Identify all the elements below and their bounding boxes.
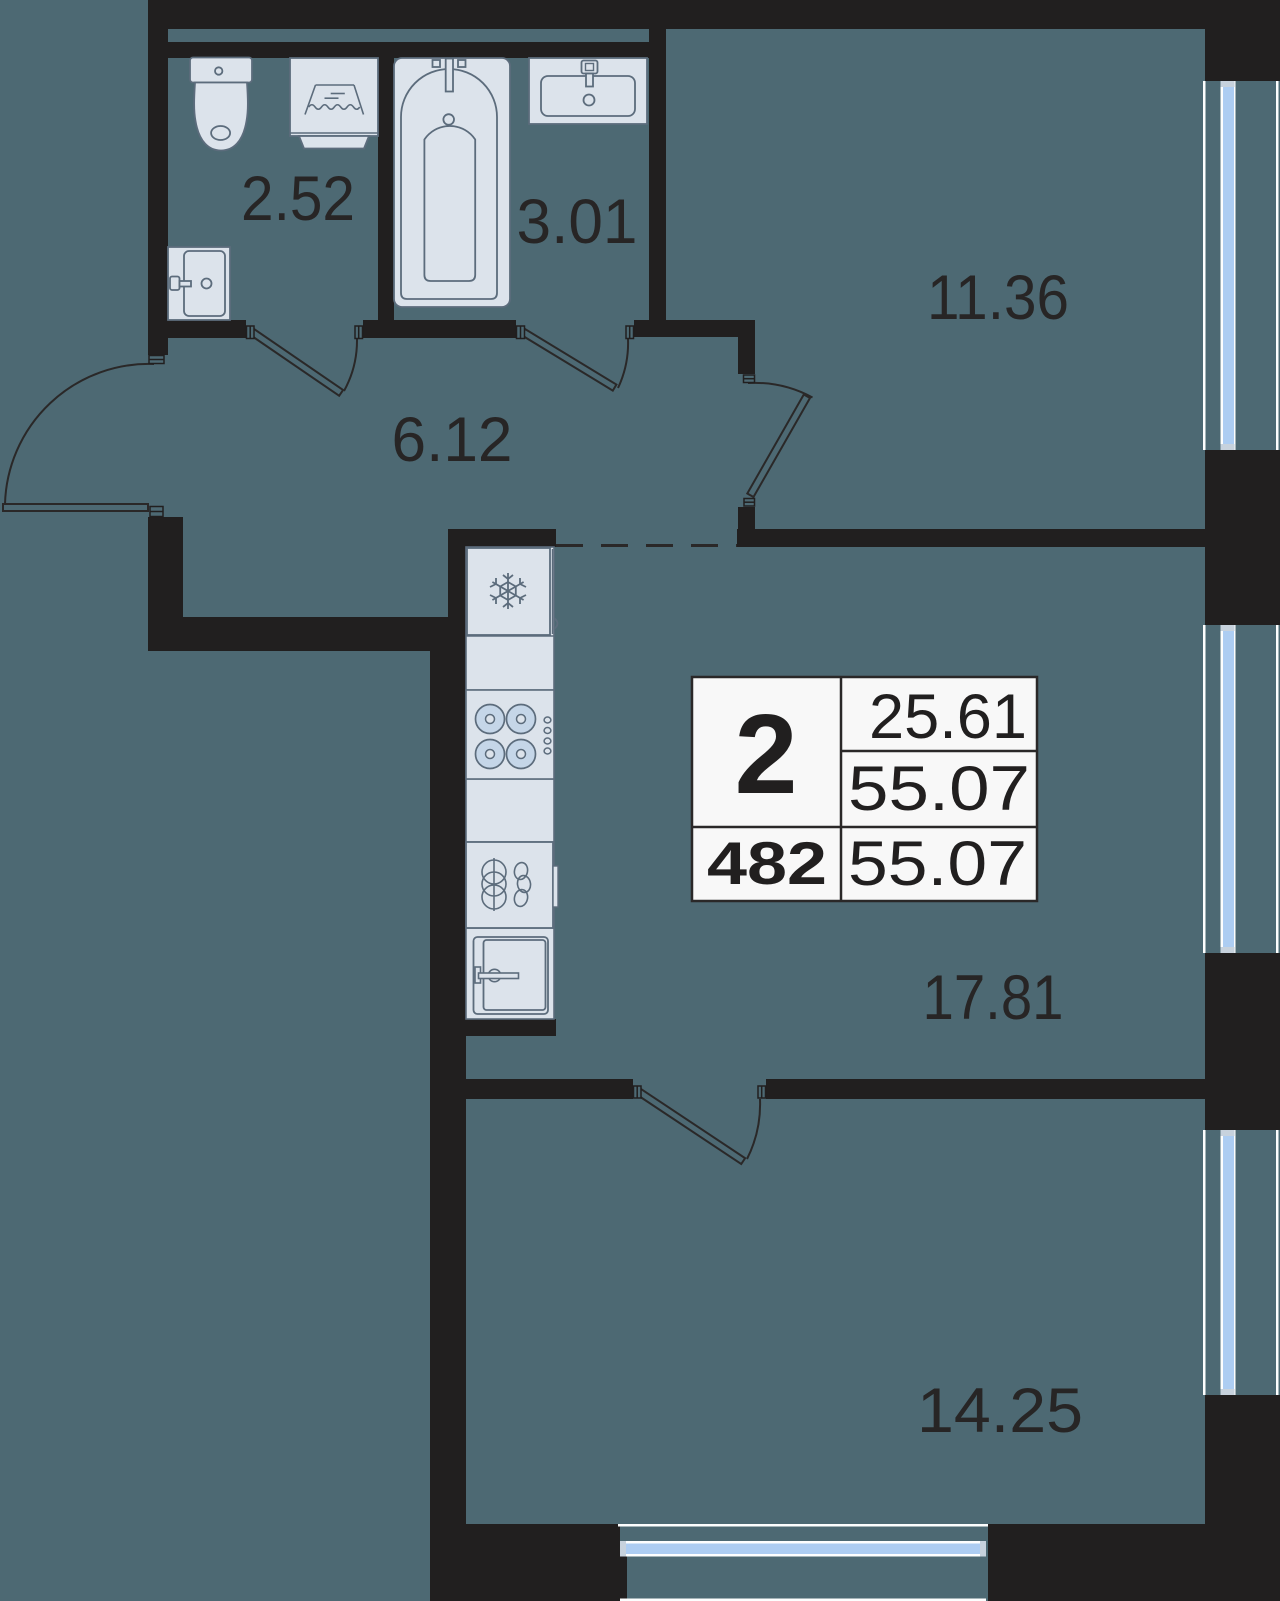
svg-text:14.25: 14.25 bbox=[917, 1376, 1083, 1446]
svg-text:25.61: 25.61 bbox=[869, 682, 1027, 752]
svg-text:2: 2 bbox=[735, 691, 798, 817]
svg-text:17.81: 17.81 bbox=[923, 963, 1064, 1033]
svg-text:482: 482 bbox=[707, 830, 827, 897]
svg-text:6.12: 6.12 bbox=[392, 405, 513, 475]
svg-text:11.36: 11.36 bbox=[927, 263, 1069, 333]
svg-text:2.52: 2.52 bbox=[241, 164, 355, 234]
svg-text:55.07: 55.07 bbox=[848, 754, 1030, 824]
svg-text:3.01: 3.01 bbox=[517, 187, 638, 257]
svg-text:55.07: 55.07 bbox=[848, 829, 1027, 899]
